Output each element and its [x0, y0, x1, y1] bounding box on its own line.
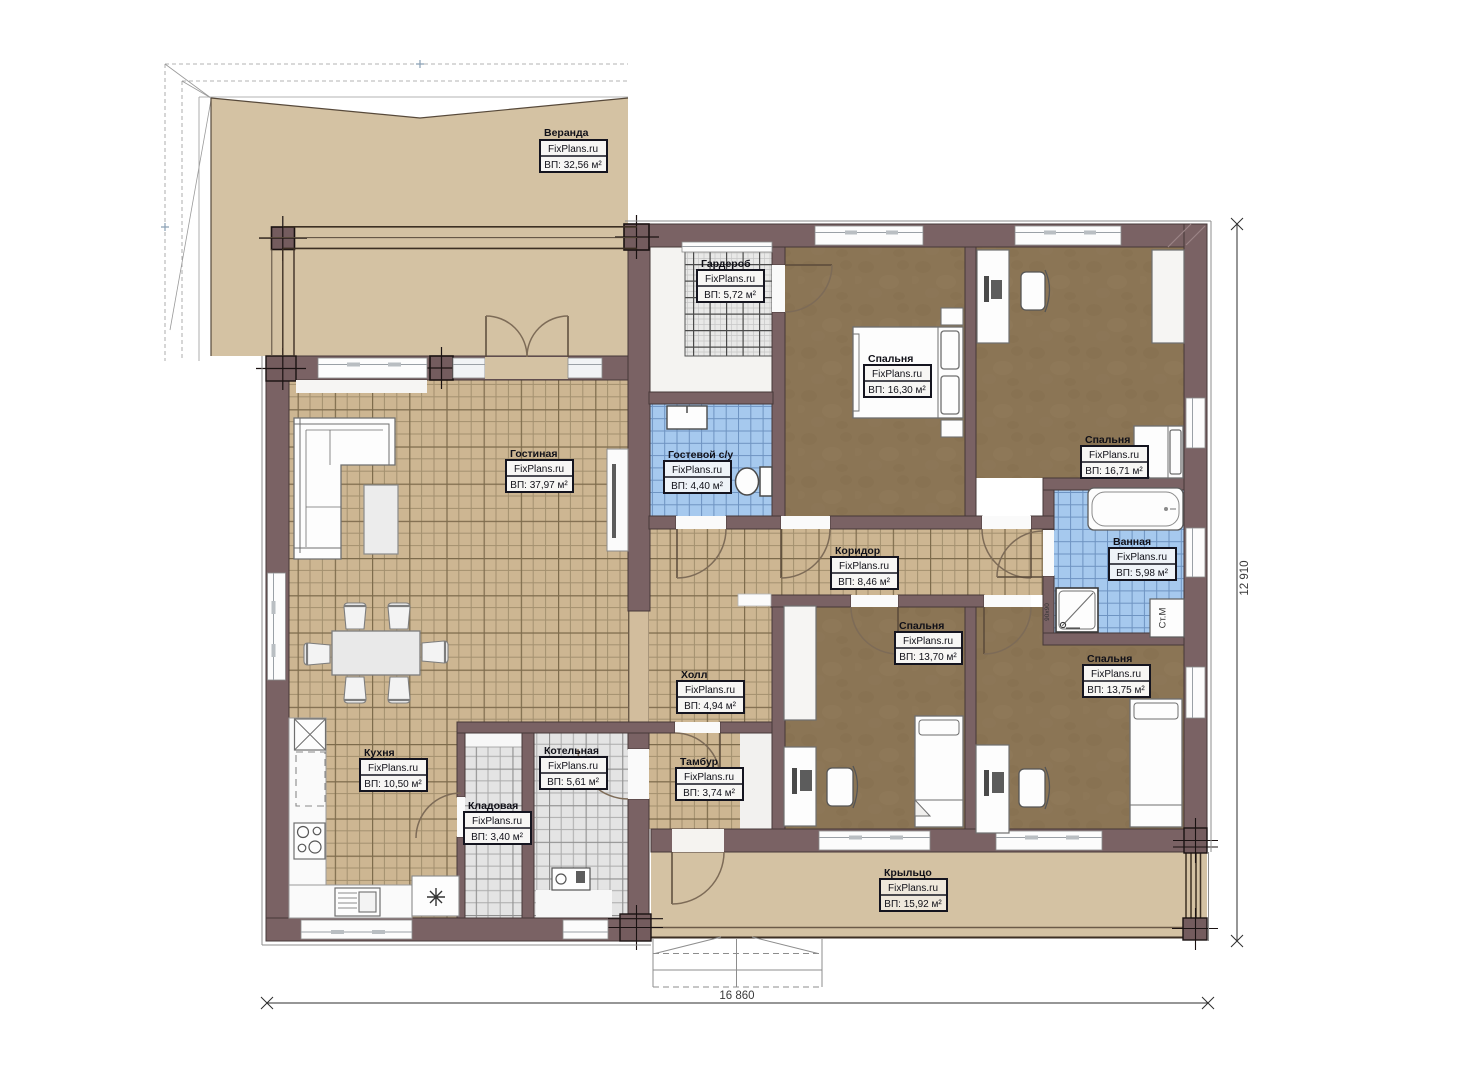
svg-text:FixPlans.ru: FixPlans.ru: [903, 636, 953, 647]
svg-text:ВП: 4,94 м²: ВП: 4,94 м²: [684, 701, 737, 712]
svg-text:ВП: 5,98 м²: ВП: 5,98 м²: [1116, 568, 1169, 579]
svg-text:FixPlans.ru: FixPlans.ru: [548, 761, 598, 772]
svg-text:FixPlans.ru: FixPlans.ru: [514, 464, 564, 475]
svg-text:ВП: 13,70 м²: ВП: 13,70 м²: [899, 652, 957, 663]
svg-text:12 910: 12 910: [1239, 560, 1251, 595]
svg-text:Кухня: Кухня: [364, 747, 395, 759]
svg-text:Ванная: Ванная: [1113, 536, 1151, 548]
svg-text:Ст.М: Ст.М: [1158, 608, 1169, 629]
svg-text:Гостиная: Гостиная: [510, 448, 557, 460]
svg-text:Тамбур: Тамбур: [680, 756, 718, 768]
svg-text:ВП: 5,72 м²: ВП: 5,72 м²: [704, 290, 757, 301]
svg-text:Спальня: Спальня: [1087, 653, 1132, 665]
svg-text:FixPlans.ru: FixPlans.ru: [839, 561, 889, 572]
svg-text:FixPlans.ru: FixPlans.ru: [872, 369, 922, 380]
svg-text:FixPlans.ru: FixPlans.ru: [548, 144, 598, 155]
svg-text:Веранда: Веранда: [544, 127, 589, 139]
svg-text:ВП: 16,30 м²: ВП: 16,30 м²: [868, 385, 926, 396]
svg-text:FixPlans.ru: FixPlans.ru: [1117, 552, 1167, 563]
svg-text:Гостевой с/у: Гостевой с/у: [668, 449, 733, 461]
svg-text:ВП: 15,92 м²: ВП: 15,92 м²: [884, 899, 942, 910]
svg-text:FixPlans.ru: FixPlans.ru: [685, 685, 735, 696]
svg-text:90x90: 90x90: [1044, 603, 1051, 621]
svg-text:Коридор: Коридор: [835, 545, 880, 557]
svg-text:ВП: 32,56 м²: ВП: 32,56 м²: [544, 160, 602, 171]
svg-text:Крыльцо: Крыльцо: [884, 867, 932, 879]
svg-text:Котельная: Котельная: [544, 745, 599, 757]
svg-text:FixPlans.ru: FixPlans.ru: [888, 883, 938, 894]
svg-text:ВП: 3,40 м²: ВП: 3,40 м²: [471, 832, 524, 843]
svg-text:Холл: Холл: [681, 669, 707, 681]
svg-text:ВП: 16,71 м²: ВП: 16,71 м²: [1085, 466, 1143, 477]
svg-text:ВП: 13,75 м²: ВП: 13,75 м²: [1087, 685, 1145, 696]
svg-text:ВП: 37,97 м²: ВП: 37,97 м²: [510, 480, 568, 491]
svg-text:16 860: 16 860: [719, 990, 754, 1002]
svg-text:ВП: 8,46 м²: ВП: 8,46 м²: [838, 577, 891, 588]
svg-text:Гардероб: Гардероб: [701, 258, 751, 270]
svg-text:Спальня: Спальня: [868, 353, 913, 365]
svg-text:FixPlans.ru: FixPlans.ru: [472, 816, 522, 827]
svg-text:FixPlans.ru: FixPlans.ru: [684, 772, 734, 783]
svg-text:Спальня: Спальня: [899, 620, 944, 632]
svg-text:ВП: 5,61 м²: ВП: 5,61 м²: [547, 777, 600, 788]
svg-text:FixPlans.ru: FixPlans.ru: [705, 274, 755, 285]
svg-text:FixPlans.ru: FixPlans.ru: [1089, 450, 1139, 461]
svg-text:FixPlans.ru: FixPlans.ru: [368, 763, 418, 774]
svg-text:ВП: 10,50 м²: ВП: 10,50 м²: [364, 779, 422, 790]
svg-text:ВП: 4,40 м²: ВП: 4,40 м²: [671, 481, 724, 492]
svg-text:FixPlans.ru: FixPlans.ru: [672, 465, 722, 476]
svg-text:Спальня: Спальня: [1085, 434, 1130, 446]
svg-text:FixPlans.ru: FixPlans.ru: [1091, 669, 1141, 680]
svg-text:Кладовая: Кладовая: [468, 800, 518, 812]
svg-text:ВП: 3,74 м²: ВП: 3,74 м²: [683, 788, 736, 799]
